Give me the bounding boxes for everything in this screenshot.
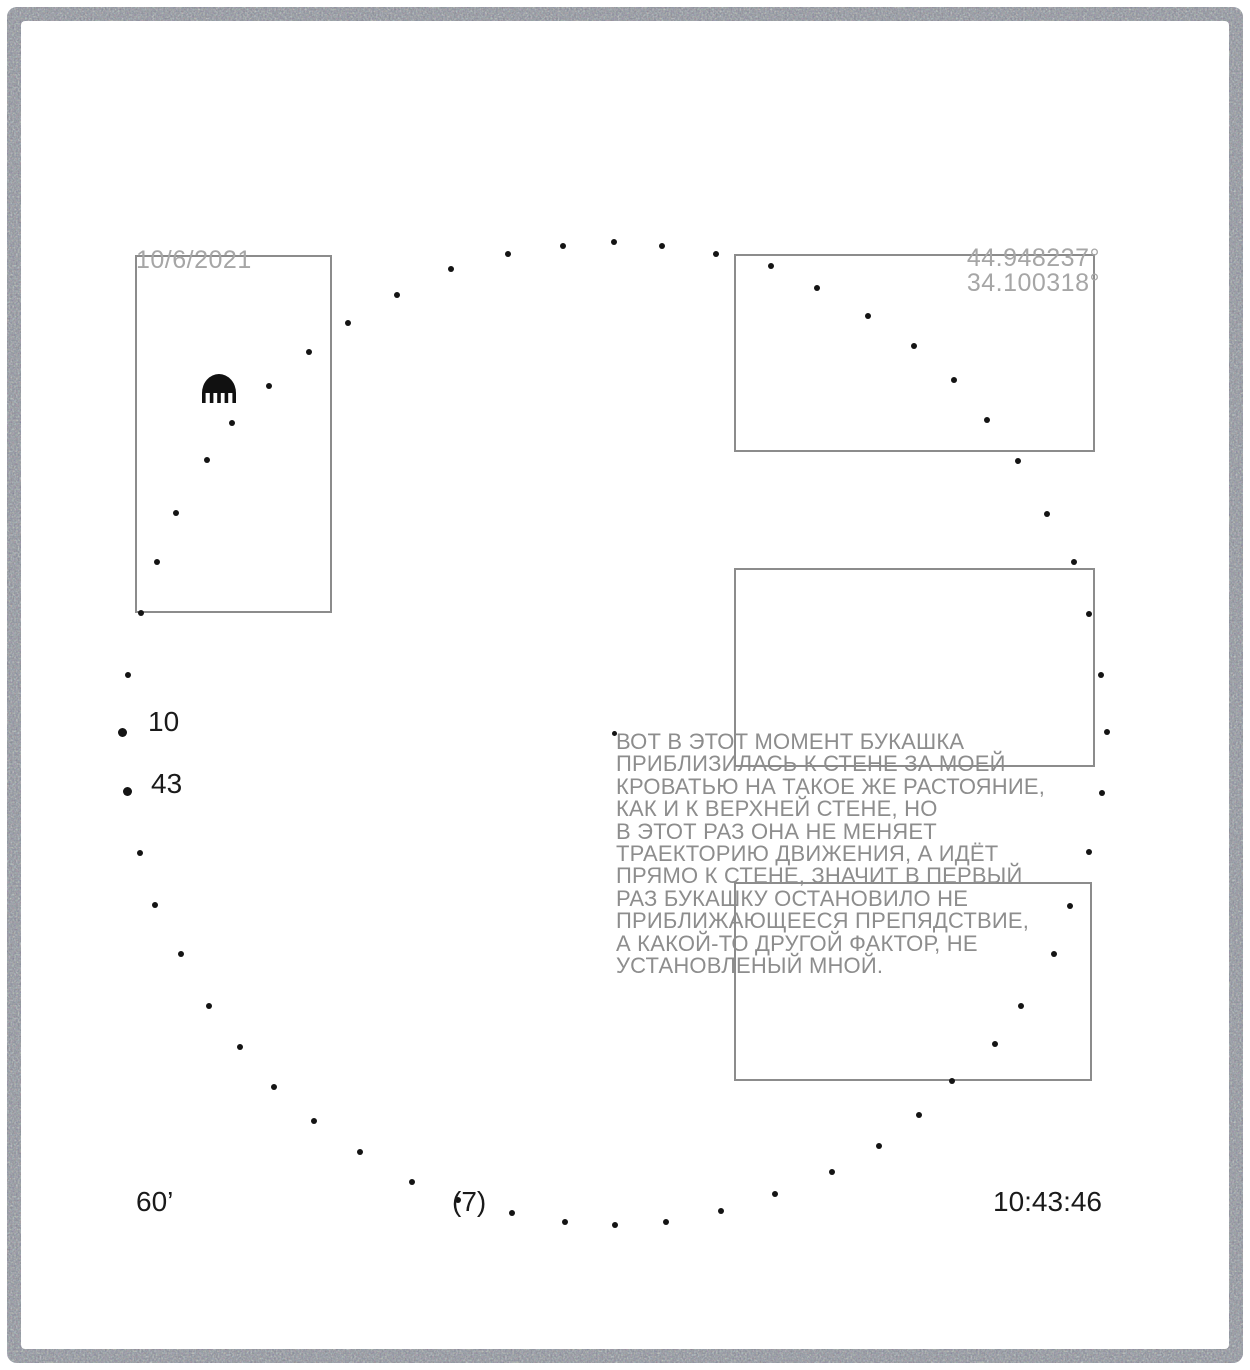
- trajectory-dot: [357, 1149, 363, 1155]
- date-label: 10/6/2021: [136, 246, 252, 275]
- trajectory-dot: [1044, 511, 1050, 517]
- trajectory-dot: [204, 457, 210, 463]
- trajectory-dot: [271, 1084, 277, 1090]
- trajectory-dot: [1018, 1003, 1024, 1009]
- trajectory-dot: [1086, 611, 1092, 617]
- pause-minutes-label-10: 10: [148, 708, 179, 736]
- trajectory-dot: [718, 1208, 724, 1214]
- trajectory-dot: [229, 420, 235, 426]
- trajectory-dot: [984, 417, 990, 423]
- frame-rect: [135, 255, 332, 613]
- trajectory-dot: [509, 1210, 515, 1216]
- trajectory-dot: [505, 251, 511, 257]
- trajectory-dot: [949, 1078, 955, 1084]
- pause-minutes-label-43: 43: [151, 770, 182, 798]
- trajectory-dot: [713, 251, 719, 257]
- trajectory-dot: [768, 263, 774, 269]
- trajectory-dot: [562, 1219, 568, 1225]
- trajectory-dot: [178, 951, 184, 957]
- trajectory-dot: [137, 850, 143, 856]
- trajectory-dot: [206, 1003, 212, 1009]
- trajectory-dot: [154, 559, 160, 565]
- trajectory-dot: [394, 292, 400, 298]
- trajectory-dot: [448, 266, 454, 272]
- bug-icon: [201, 373, 237, 404]
- trajectory-dot: [173, 510, 179, 516]
- trajectory-dot: [1071, 559, 1077, 565]
- trajectory-dot: [659, 243, 665, 249]
- trajectory-dot: [611, 239, 617, 245]
- trajectory-dot: [560, 243, 566, 249]
- trajectory-dot: [123, 787, 132, 796]
- trajectory-dot: [951, 377, 957, 383]
- trajectory-dot: [911, 343, 917, 349]
- trajectory-dot: [916, 1112, 922, 1118]
- trajectory-dot: [876, 1143, 882, 1149]
- trajectory-dot: [772, 1191, 778, 1197]
- trajectory-dot: [266, 383, 272, 389]
- trajectory-dot: [1098, 672, 1104, 678]
- latitude-value: 44.948237°: [967, 246, 1100, 271]
- trajectory-dot: [125, 672, 131, 678]
- trajectory-dot: [865, 313, 871, 319]
- trajectory-dot: [311, 1118, 317, 1124]
- trajectory-dot: [1015, 458, 1021, 464]
- longitude-value: 34.100318°: [967, 271, 1100, 296]
- trajectory-dot: [992, 1041, 998, 1047]
- timestamp-label: 10:43:46: [993, 1188, 1102, 1216]
- drawing-layer: [0, 0, 1250, 1370]
- trajectory-dot: [138, 610, 144, 616]
- trajectory-dot: [663, 1219, 669, 1225]
- trajectory-dot: [237, 1044, 243, 1050]
- observation-note: ВОТ В ЭТОТ МОМЕНТ БУКАШКА ПРИБЛИЗИЛАСЬ К…: [616, 731, 1126, 977]
- trajectory-dot: [409, 1179, 415, 1185]
- trajectory-dot: [118, 728, 127, 737]
- trajectory-dot: [829, 1169, 835, 1175]
- trajectory-dot: [152, 902, 158, 908]
- page: 10/6/2021 44.948237° 34.100318° 10 43 ВО…: [0, 0, 1250, 1370]
- trajectory-dot: [814, 285, 820, 291]
- trajectory-dot: [612, 1222, 618, 1228]
- trajectory-dot: [306, 349, 312, 355]
- sequence-marker-label: (7): [452, 1188, 486, 1216]
- gps-coordinates: 44.948237° 34.100318°: [967, 246, 1100, 295]
- duration-label: 60’: [136, 1188, 173, 1216]
- trajectory-dot: [345, 320, 351, 326]
